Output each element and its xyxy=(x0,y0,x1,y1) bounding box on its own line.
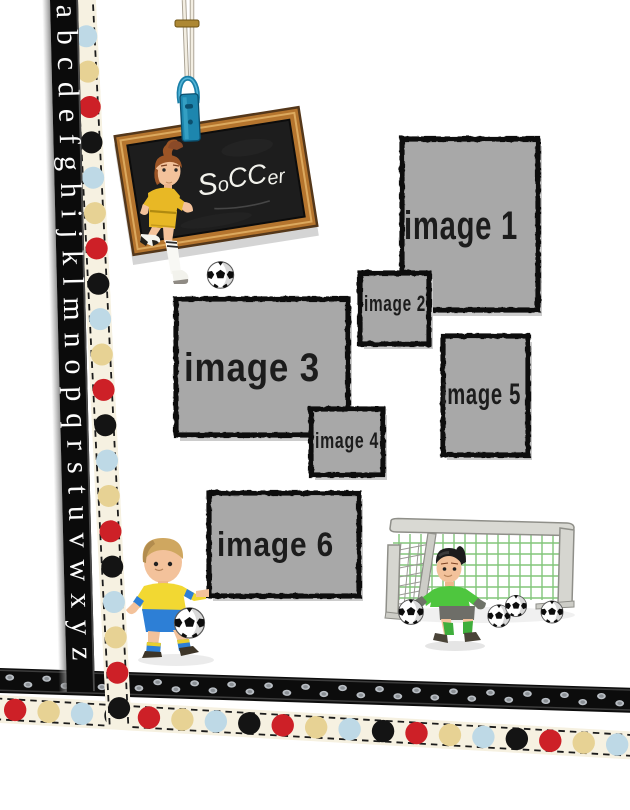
svg-text:image 6: image 6 xyxy=(217,526,334,564)
svg-text:image 3: image 3 xyxy=(184,346,320,390)
svg-text:image 2: image 2 xyxy=(364,291,426,316)
svg-text:image 5: image 5 xyxy=(441,378,521,411)
svg-text:image 1: image 1 xyxy=(404,204,518,248)
svg-text:image 4: image 4 xyxy=(315,428,379,453)
